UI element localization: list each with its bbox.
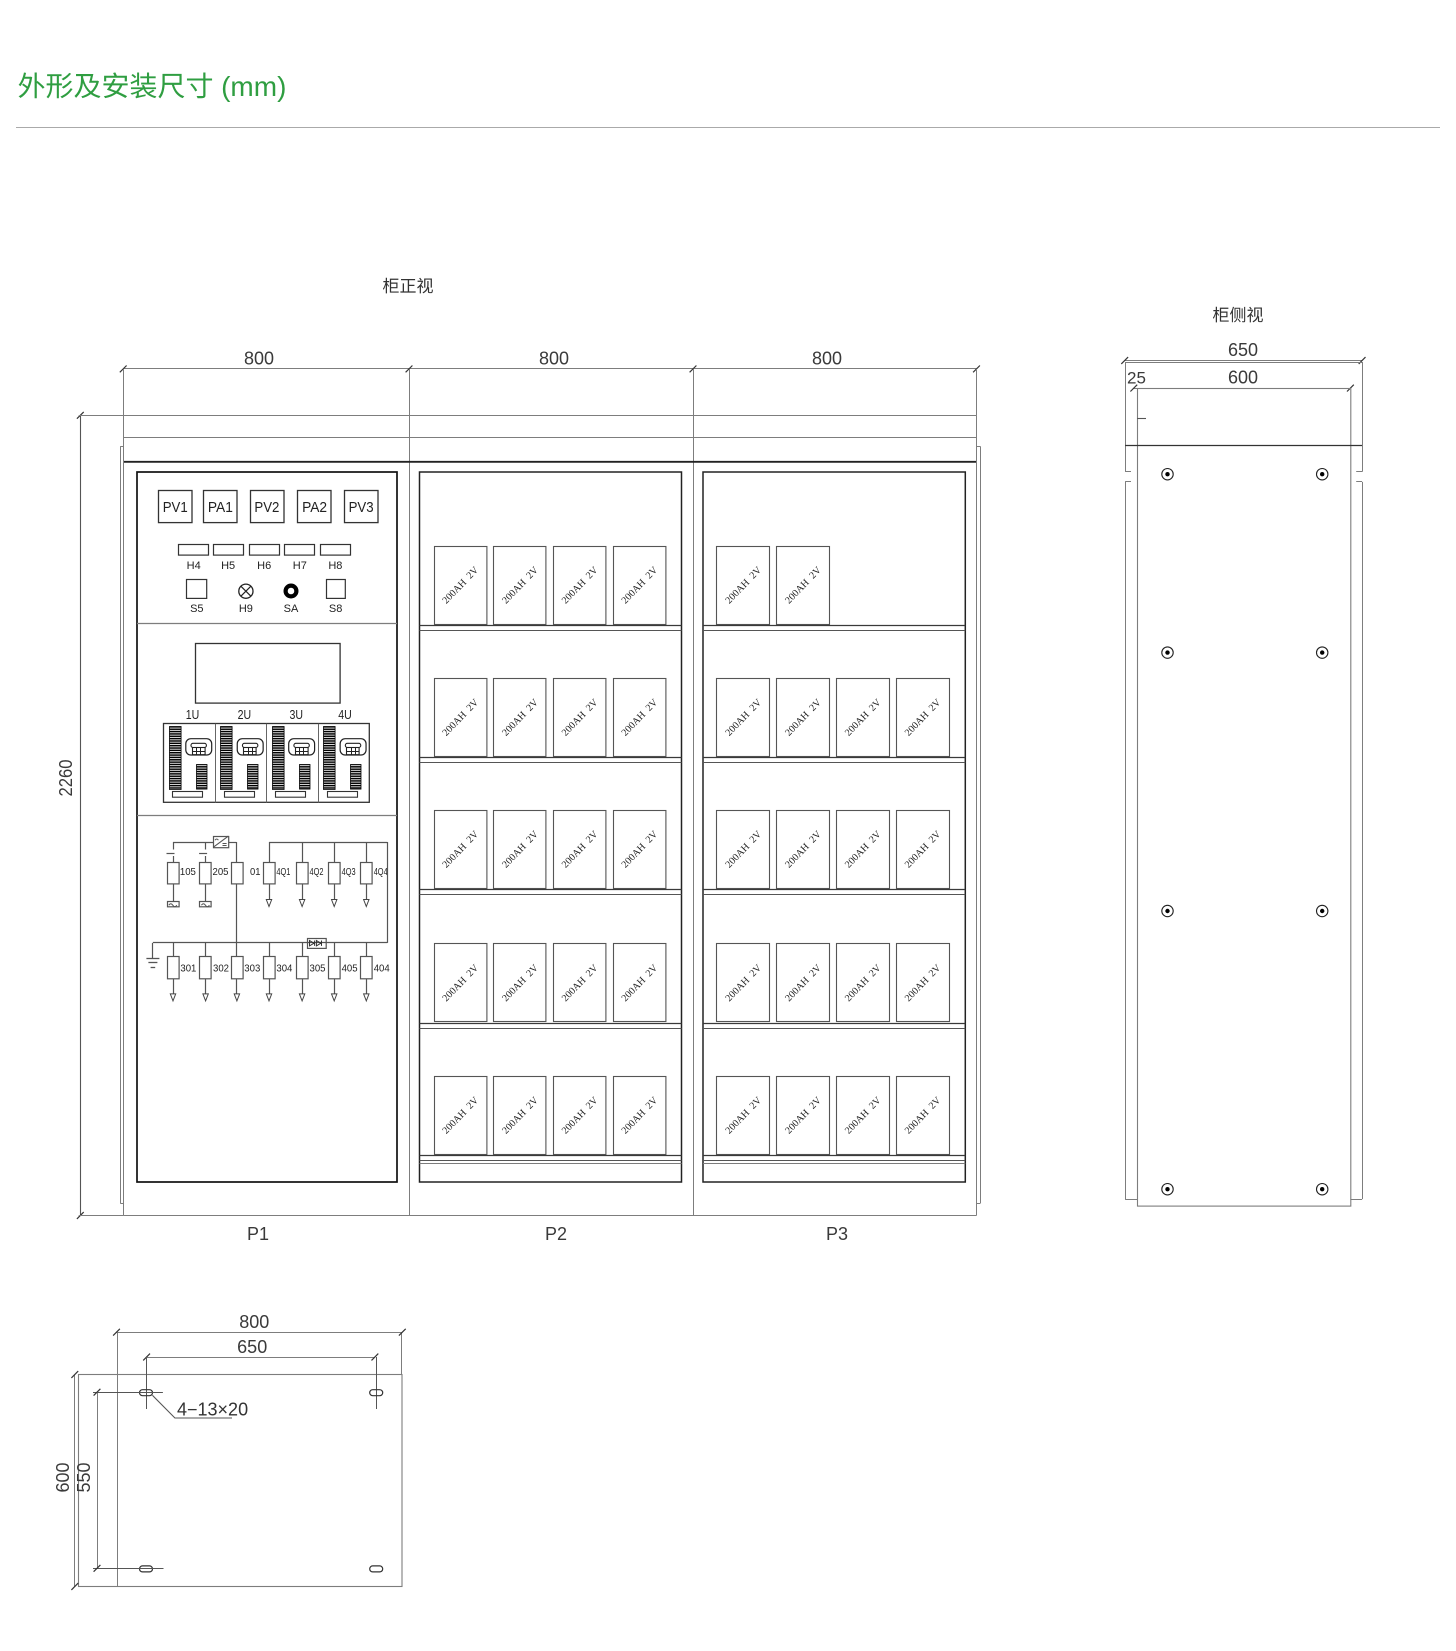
svg-text:PV3: PV3 bbox=[349, 499, 374, 516]
svg-text:200AH 2V: 200AH 2V bbox=[724, 1095, 765, 1137]
svg-text:4Q2: 4Q2 bbox=[310, 866, 324, 878]
svg-text:200AH 2V: 200AH 2V bbox=[783, 962, 824, 1004]
svg-text:4Q4: 4Q4 bbox=[374, 866, 388, 878]
svg-text:200AH 2V: 200AH 2V bbox=[724, 828, 765, 870]
svg-text:4−13×20: 4−13×20 bbox=[177, 1400, 248, 1420]
svg-text:(mm): (mm) bbox=[221, 71, 286, 102]
svg-text:P1: P1 bbox=[247, 1224, 269, 1244]
svg-text:200AH 2V: 200AH 2V bbox=[903, 962, 944, 1004]
svg-text:H5: H5 bbox=[221, 560, 235, 572]
svg-text:200AH 2V: 200AH 2V bbox=[724, 564, 765, 606]
svg-text:200AH 2V: 200AH 2V bbox=[903, 828, 944, 870]
svg-text:650: 650 bbox=[1228, 340, 1258, 360]
svg-text:200AH 2V: 200AH 2V bbox=[441, 1095, 482, 1137]
svg-text:PA1: PA1 bbox=[208, 499, 233, 516]
svg-text:302: 302 bbox=[213, 962, 229, 974]
svg-text:200AH 2V: 200AH 2V bbox=[620, 697, 661, 739]
svg-text:800: 800 bbox=[239, 1312, 269, 1332]
svg-text:200AH 2V: 200AH 2V bbox=[560, 962, 601, 1004]
svg-text:550: 550 bbox=[74, 1462, 94, 1492]
svg-text:PA2: PA2 bbox=[302, 499, 327, 516]
svg-text:200AH 2V: 200AH 2V bbox=[783, 828, 824, 870]
svg-text:200AH 2V: 200AH 2V bbox=[903, 697, 944, 739]
svg-text:200AH 2V: 200AH 2V bbox=[500, 828, 541, 870]
svg-text:305: 305 bbox=[310, 962, 326, 974]
svg-text:200AH 2V: 200AH 2V bbox=[724, 697, 765, 739]
svg-text:2U: 2U bbox=[238, 708, 252, 722]
svg-text:4Q1: 4Q1 bbox=[276, 866, 290, 878]
svg-text:200AH 2V: 200AH 2V bbox=[500, 962, 541, 1004]
svg-text:200AH 2V: 200AH 2V bbox=[441, 564, 482, 606]
svg-text:404: 404 bbox=[374, 962, 390, 974]
svg-text:P3: P3 bbox=[826, 1224, 848, 1244]
svg-text:P2: P2 bbox=[545, 1224, 567, 1244]
svg-text:200AH 2V: 200AH 2V bbox=[783, 1095, 824, 1137]
svg-text:600: 600 bbox=[1228, 368, 1258, 388]
svg-text:200AH 2V: 200AH 2V bbox=[560, 697, 601, 739]
svg-text:01: 01 bbox=[250, 866, 261, 878]
svg-text:200AH 2V: 200AH 2V bbox=[560, 1095, 601, 1137]
svg-text:303: 303 bbox=[244, 962, 260, 974]
svg-text:200AH 2V: 200AH 2V bbox=[843, 697, 884, 739]
svg-text:200AH 2V: 200AH 2V bbox=[500, 564, 541, 606]
svg-text:800: 800 bbox=[244, 349, 274, 369]
svg-text:405: 405 bbox=[342, 962, 358, 974]
svg-text:H4: H4 bbox=[187, 560, 201, 572]
svg-text:4Q3: 4Q3 bbox=[342, 866, 356, 878]
svg-text:S8: S8 bbox=[329, 603, 342, 615]
svg-text:205: 205 bbox=[213, 866, 229, 878]
svg-text:200AH 2V: 200AH 2V bbox=[620, 564, 661, 606]
svg-text:200AH 2V: 200AH 2V bbox=[783, 564, 824, 606]
svg-text:200AH 2V: 200AH 2V bbox=[620, 828, 661, 870]
svg-text:105: 105 bbox=[180, 866, 196, 878]
svg-text:200AH 2V: 200AH 2V bbox=[843, 828, 884, 870]
svg-text:200AH 2V: 200AH 2V bbox=[783, 697, 824, 739]
svg-text:2260: 2260 bbox=[56, 760, 76, 797]
svg-text:4U: 4U bbox=[338, 708, 352, 722]
svg-text:200AH 2V: 200AH 2V bbox=[620, 1095, 661, 1137]
svg-text:H6: H6 bbox=[257, 560, 271, 572]
svg-text:1U: 1U bbox=[186, 708, 200, 722]
svg-text:H9: H9 bbox=[239, 603, 253, 615]
svg-text:200AH 2V: 200AH 2V bbox=[843, 962, 884, 1004]
svg-text:200AH 2V: 200AH 2V bbox=[441, 962, 482, 1004]
svg-text:PV2: PV2 bbox=[254, 499, 279, 516]
svg-text:301: 301 bbox=[180, 962, 196, 974]
svg-text:800: 800 bbox=[539, 349, 569, 369]
svg-text:200AH 2V: 200AH 2V bbox=[500, 1095, 541, 1137]
svg-text:200AH 2V: 200AH 2V bbox=[724, 962, 765, 1004]
svg-text:200AH 2V: 200AH 2V bbox=[560, 564, 601, 606]
svg-text:PV1: PV1 bbox=[163, 499, 188, 516]
svg-text:650: 650 bbox=[237, 1337, 267, 1357]
svg-text:200AH 2V: 200AH 2V bbox=[843, 1095, 884, 1137]
svg-text:304: 304 bbox=[276, 962, 292, 974]
svg-text:H8: H8 bbox=[328, 560, 342, 572]
svg-text:200AH 2V: 200AH 2V bbox=[560, 828, 601, 870]
svg-text:H7: H7 bbox=[293, 560, 307, 572]
svg-text:200AH 2V: 200AH 2V bbox=[441, 828, 482, 870]
svg-text:200AH 2V: 200AH 2V bbox=[500, 697, 541, 739]
svg-text:600: 600 bbox=[53, 1462, 73, 1492]
svg-text:200AH 2V: 200AH 2V bbox=[903, 1095, 944, 1137]
svg-text:SA: SA bbox=[284, 603, 299, 615]
svg-text:200AH 2V: 200AH 2V bbox=[441, 697, 482, 739]
svg-text:25: 25 bbox=[1127, 369, 1146, 388]
svg-text:S5: S5 bbox=[190, 603, 203, 615]
svg-text:800: 800 bbox=[812, 349, 842, 369]
svg-text:200AH 2V: 200AH 2V bbox=[620, 962, 661, 1004]
svg-text:3U: 3U bbox=[290, 708, 304, 722]
